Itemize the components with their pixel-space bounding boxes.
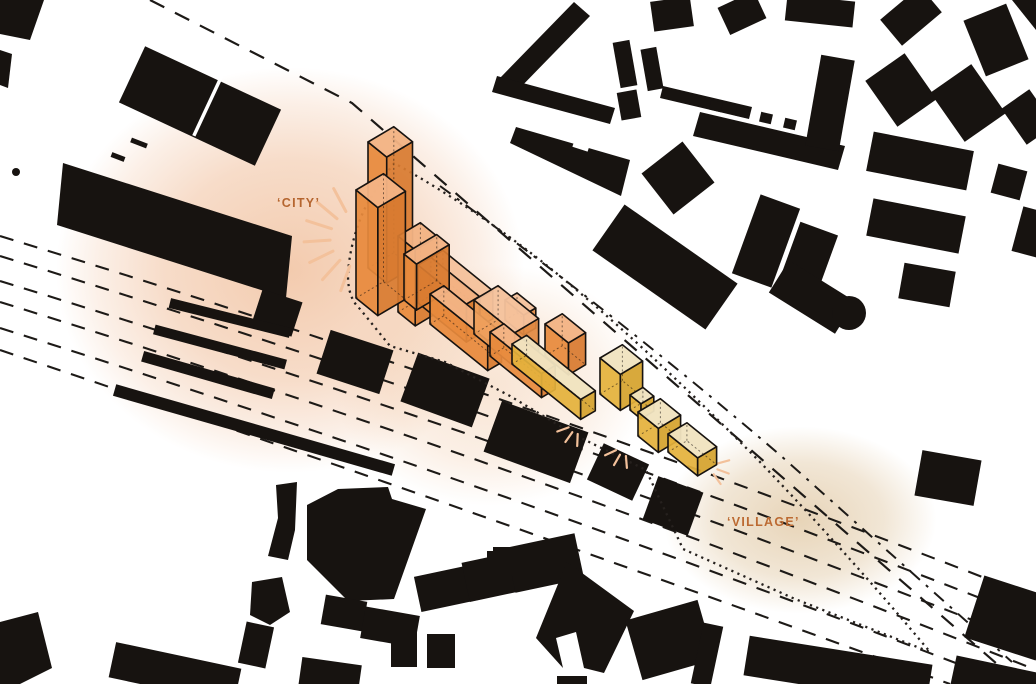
mass-tower-front <box>356 174 405 316</box>
building-footprint <box>119 46 281 166</box>
building-footprint <box>930 64 1005 142</box>
building-footprint <box>238 622 274 669</box>
building-footprint <box>557 676 587 684</box>
building-footprint <box>865 53 936 126</box>
building-footprint <box>57 163 292 298</box>
building-footprint <box>964 576 1036 661</box>
city-label: ‘CITY’ <box>277 196 320 210</box>
building-footprint <box>0 50 12 88</box>
building-footprint <box>963 4 1028 77</box>
building-footprint <box>650 0 694 32</box>
building-footprint <box>500 2 590 92</box>
terrace-tooth <box>783 118 797 130</box>
building-footprint <box>866 198 966 253</box>
building-footprint <box>298 657 362 684</box>
road-mark <box>111 152 126 162</box>
building-footprint <box>0 0 44 40</box>
building-footprint <box>427 634 455 668</box>
building-footprint <box>613 40 638 88</box>
hook-building-end <box>832 296 866 330</box>
site-plan-graphics <box>0 0 1036 684</box>
platform-bar <box>113 384 395 475</box>
building-footprint <box>1001 89 1036 145</box>
site-plan-canvas: ‘CITY’ ‘VILLAGE’ <box>0 0 1036 684</box>
building-footprint <box>487 551 501 579</box>
building-footprint <box>587 443 649 500</box>
building-footprint <box>718 0 767 35</box>
building-footprint <box>880 0 942 46</box>
building-footprint <box>250 577 290 625</box>
village-label: ‘VILLAGE’ <box>727 515 800 529</box>
building-footprint <box>866 132 974 191</box>
building-footprint <box>785 0 855 27</box>
building-footprint <box>492 76 615 124</box>
building-footprint <box>391 621 417 667</box>
building-footprint <box>1012 0 1036 30</box>
building-footprint <box>640 47 663 91</box>
building-footprint <box>510 127 630 196</box>
building-footprint <box>617 89 642 120</box>
building-footprint <box>317 330 394 394</box>
terrace-tooth <box>759 112 773 124</box>
road-mark <box>130 138 148 149</box>
track-line <box>0 328 1010 684</box>
building-footprint <box>898 263 955 307</box>
building-footprint <box>642 142 715 215</box>
building-footprint <box>109 642 242 684</box>
building-footprint <box>307 487 426 601</box>
building-footprint <box>1011 206 1036 257</box>
building-footprint <box>805 55 854 152</box>
building-footprint <box>592 204 737 329</box>
building-footprint <box>914 450 981 506</box>
map-dot <box>12 168 20 176</box>
building-footprint <box>268 482 297 560</box>
mass-village-hall <box>668 423 717 476</box>
building-footprint <box>991 164 1028 201</box>
building-footprint <box>0 612 52 684</box>
